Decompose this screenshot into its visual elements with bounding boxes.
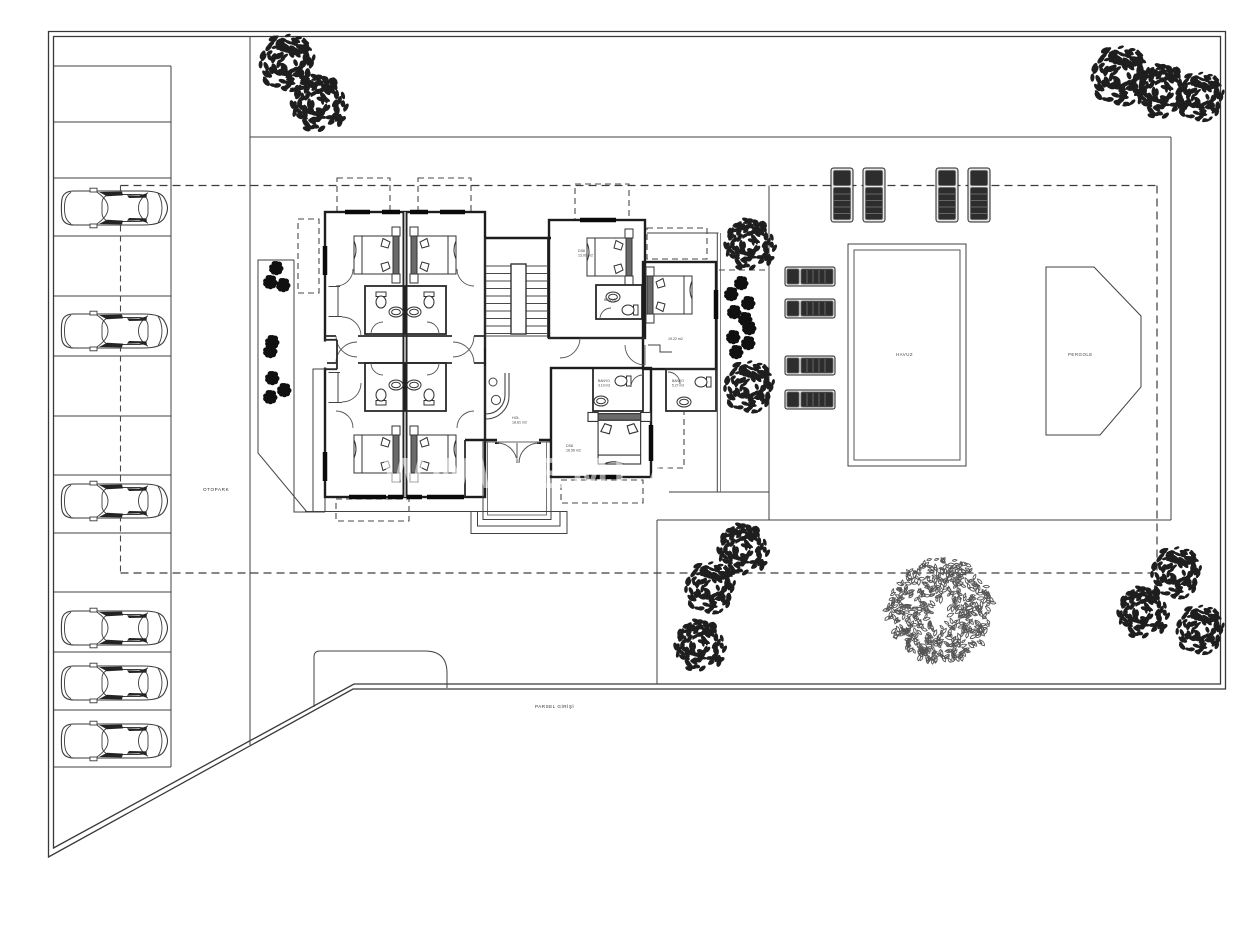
svg-text:5.27 m2: 5.27 m2 (672, 384, 684, 388)
svg-text:3.10 m2: 3.10 m2 (598, 384, 610, 388)
svg-text:BANYO: BANYO (604, 298, 616, 302)
svg-text:18.81 m2: 18.81 m2 (512, 421, 527, 425)
svg-text:DS6: DS6 (578, 249, 585, 253)
svg-text:HAVUZ: HAVUZ (896, 352, 913, 357)
svg-text:BANYO: BANYO (598, 379, 610, 383)
svg-text:BANYO: BANYO (672, 379, 684, 383)
svg-text:WWW.EMLA: WWW.EMLA (383, 449, 682, 498)
svg-text:PARSEL GİRİŞİ: PARSEL GİRİŞİ (535, 703, 574, 709)
svg-text:PERGOLE: PERGOLE (1068, 352, 1093, 357)
svg-text:19.22 m2: 19.22 m2 (668, 337, 683, 341)
svg-text:HOL: HOL (512, 416, 519, 420)
svg-text:OTOPARK: OTOPARK (203, 487, 230, 492)
svg-text:13.09 m2: 13.09 m2 (578, 254, 593, 258)
svg-text:DS8: DS8 (566, 444, 573, 448)
